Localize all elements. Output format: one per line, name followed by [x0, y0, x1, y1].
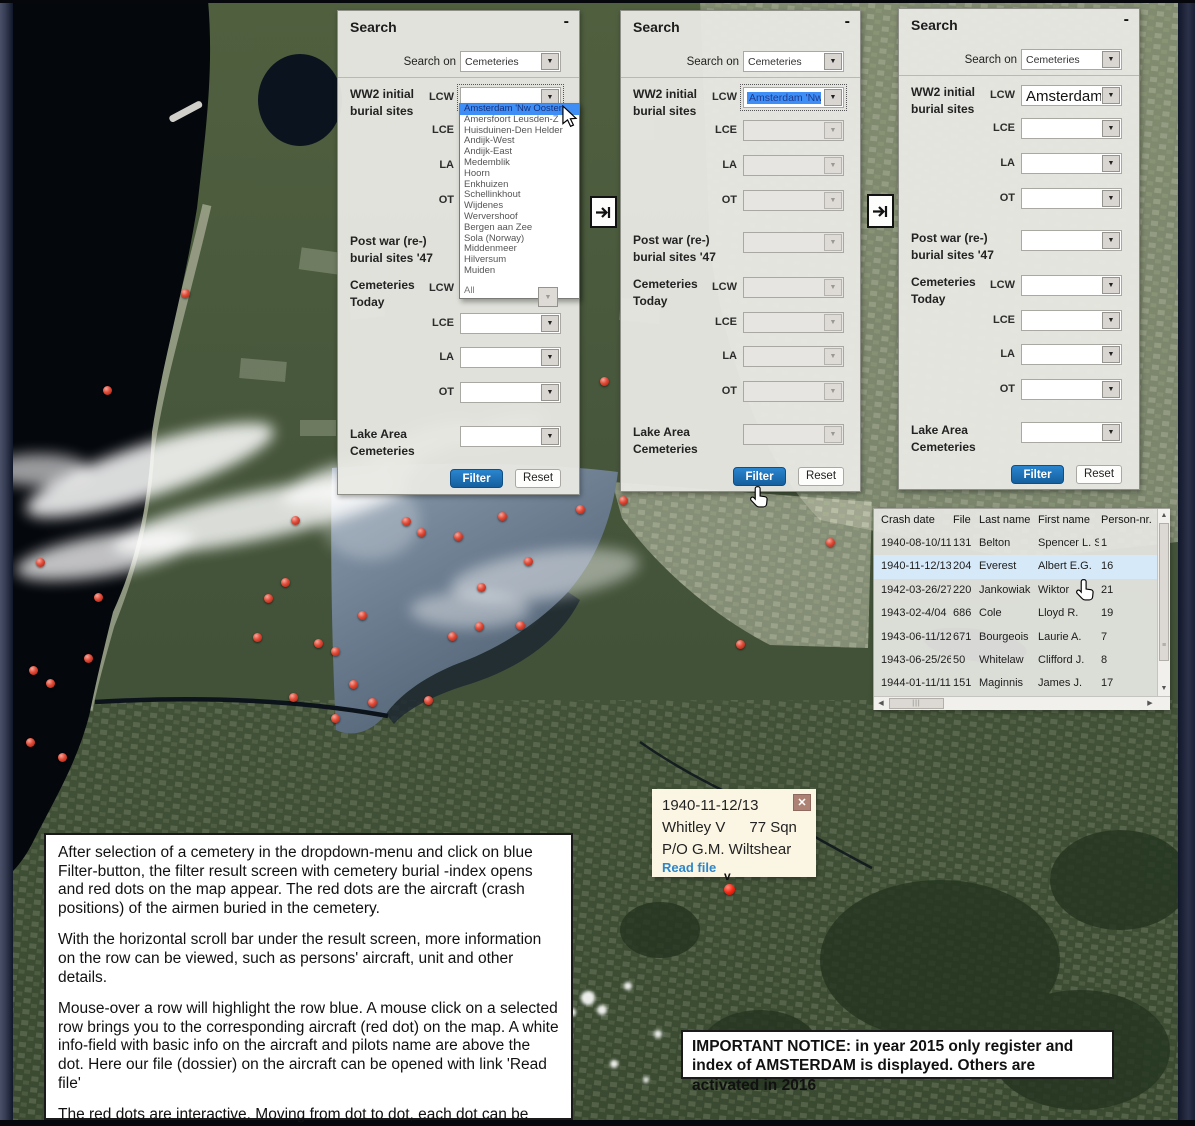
filter-button[interactable]: Filter [450, 469, 503, 488]
crash-site-dot[interactable] [424, 696, 433, 705]
lakearea-value [1022, 423, 1101, 442]
dropdown-item[interactable]: Amsterdam 'Nw Ooster [460, 104, 579, 115]
today-ot-value [744, 382, 823, 401]
window-edge-top [0, 0, 1195, 3]
table-cell: Lloyd R. [1038, 607, 1099, 619]
lakearea-label-2: Cemeteries [350, 444, 415, 458]
instructions-box: After selection of a cemetery in the dro… [44, 833, 573, 1120]
dropdown-arrow-icon: ▼ [824, 157, 842, 174]
table-cell: 220 [953, 584, 977, 596]
dropdown-arrow-icon[interactable]: ▼ [1102, 232, 1120, 249]
crash-site-dot[interactable] [477, 583, 486, 592]
lcw-label: LCW [683, 281, 737, 293]
crash-site-dot[interactable] [736, 640, 745, 649]
dropdown-arrow-icon: ▼ [824, 234, 842, 251]
dropdown-arrow-icon[interactable]: ▼ [824, 53, 842, 70]
crash-site-dot[interactable] [291, 516, 300, 525]
ot-value [1022, 189, 1101, 208]
today-lcw-select: ▼ [743, 277, 844, 298]
lakearea-label-1: Lake Area [350, 427, 407, 441]
crash-site-dot[interactable] [84, 654, 93, 663]
lcw-label: LCW [683, 91, 737, 103]
scroll-grip-icon: ≡ [1161, 642, 1167, 649]
crash-site-dot[interactable] [314, 639, 323, 648]
lce-label: LCE [961, 122, 1015, 134]
ot-value [744, 191, 823, 210]
dropdown-arrow-icon: ▼ [824, 279, 842, 296]
crash-site-dot[interactable] [331, 647, 340, 656]
table-cell: 16 [1101, 560, 1161, 572]
search-on-select[interactable]: Cemeteries ▼ [1021, 49, 1122, 70]
crash-site-dot[interactable] [58, 753, 67, 762]
ww2-ot-select[interactable]: ▼ [1021, 188, 1122, 209]
lce-label: LCE [400, 124, 454, 136]
postwar-label-2: burial sites '47 [350, 251, 433, 265]
today-ot-select[interactable]: ▼ [1021, 379, 1122, 400]
dropdown-item[interactable]: Bergen aan Zee [460, 223, 579, 234]
today-lcw-value [1022, 276, 1101, 295]
ot-label: OT [683, 194, 737, 206]
aircraft-line: Whitley V77 Sqn [662, 819, 797, 836]
table-row[interactable]: 1943-02-4/04686ColeLloyd R.19 [874, 602, 1169, 625]
column-header: First name [1038, 514, 1090, 526]
lcw-value: Amsterdam [1022, 86, 1101, 105]
table-cell: 17 [1101, 677, 1161, 689]
table-cell: 1943-06-11/12 [881, 631, 951, 643]
dropdown-arrow-icon[interactable]: ▼ [1102, 346, 1120, 363]
expand-panel-arrow-button[interactable] [867, 194, 894, 228]
ww2-la-select: ▼ [743, 155, 844, 176]
crash-site-dot[interactable] [264, 594, 273, 603]
today-la-value [1022, 345, 1101, 364]
today-la-select: ▼ [743, 346, 844, 367]
dropdown-item[interactable]: Hilversum [460, 255, 579, 266]
table-row[interactable]: 1942-03-26/27220JankowiakWiktor21 [874, 579, 1169, 602]
la-value [744, 156, 823, 175]
cemetery-dropdown-list: Amsterdam 'Nw OosterAmersfoort Leusden-Z… [459, 103, 580, 299]
crash-site-dot[interactable] [281, 578, 290, 587]
la-label: LA [400, 351, 454, 363]
la-label: LA [683, 159, 737, 171]
today-lcw-select[interactable]: ▼ [1021, 275, 1122, 296]
scroll-right-icon[interactable]: ▶ [1144, 698, 1156, 710]
table-cell: Everest [979, 560, 1036, 572]
postwar-value [1022, 231, 1101, 250]
la-label: LA [400, 159, 454, 171]
dropdown-arrow-icon[interactable]: ▼ [1102, 51, 1120, 68]
window-edge-right [1178, 0, 1195, 1126]
dropdown-item[interactable]: Medemblik [460, 158, 579, 169]
dropdown-item-all[interactable]: All [464, 285, 475, 296]
today-ot-value [461, 383, 540, 402]
dropdown-arrow-icon[interactable]: ▼ [1102, 120, 1120, 137]
crash-site-dot[interactable] [368, 698, 377, 707]
divider [899, 75, 1139, 76]
ot-label: OT [400, 386, 454, 398]
today-label-2: Today [350, 295, 384, 309]
filter-button[interactable]: Filter [733, 467, 786, 486]
crash-site-dot[interactable] [26, 738, 35, 747]
dropdown-arrow-icon[interactable]: ▼ [541, 384, 559, 401]
dropdown-item[interactable]: Hoorn [460, 169, 579, 180]
table-cell: 7 [1101, 631, 1161, 643]
lce-label: LCE [683, 124, 737, 136]
crash-site-dot[interactable] [475, 622, 484, 631]
minimize-icon[interactable]: - [1124, 11, 1129, 29]
postwar-label-2: burial sites '47 [911, 248, 994, 262]
table-cell: 50 [953, 654, 977, 666]
crash-site-dot[interactable] [524, 557, 533, 566]
arrow-to-bar-icon [872, 205, 889, 218]
search-on-label: Search on [929, 54, 1017, 66]
dropdown-arrow-icon: ▼ [824, 122, 842, 139]
today-lce-select: ▼ [743, 312, 844, 333]
la-label: LA [961, 157, 1015, 169]
ww2-lcw-select[interactable]: Amsterdam 'Nw O ▼ [743, 87, 844, 108]
ww2-lce-select: ▼ [743, 120, 844, 141]
table-row[interactable]: 1943-06-25/2650WhitelawClifford J.8 [874, 649, 1169, 672]
today-label-2: Today [911, 292, 945, 306]
close-icon[interactable]: ✕ [793, 794, 811, 811]
table-cell: 151 [953, 677, 977, 689]
filter-button[interactable]: Filter [1011, 465, 1064, 484]
postwar-label-1: Post war (re-) [350, 234, 427, 248]
crash-site-dot[interactable] [498, 512, 507, 521]
table-cell: 1943-02-4/04 [881, 607, 951, 619]
panel-title: Search [350, 19, 397, 35]
crash-site-dot[interactable] [331, 714, 340, 723]
lakearea-label-1: Lake Area [911, 423, 968, 437]
crash-site-dot[interactable] [516, 621, 525, 630]
horizontal-scrollbar[interactable]: ◀ ||| ▶ [874, 696, 1170, 710]
today-label-2: Today [633, 294, 667, 308]
crash-site-dot[interactable] [417, 528, 426, 537]
la-value [1022, 154, 1101, 173]
search-panel-2: Search - Search on Cemeteries ▼ WW2 init… [620, 10, 861, 492]
map-application-window: Search - Search on Cemeteries ▼ WW2 init… [0, 0, 1195, 1126]
dropdown-arrow-icon[interactable]: ▼ [1102, 277, 1120, 294]
lcw-label: LCW [400, 282, 454, 294]
crash-site-dot[interactable] [253, 633, 262, 642]
ot-label: OT [400, 194, 454, 206]
today-lce-value [461, 314, 540, 333]
ww2-la-select[interactable]: ▼ [1021, 153, 1122, 174]
search-on-select[interactable]: Cemeteries ▼ [743, 51, 844, 72]
lcw-value-selected: Amsterdam 'Nw O [747, 92, 821, 104]
table-cell: Spencer L. S. [1038, 537, 1099, 549]
crash-site-dot[interactable] [29, 666, 38, 675]
column-header: Crash date [881, 514, 935, 526]
expand-panel-arrow-button[interactable] [590, 196, 617, 228]
lce-label: LCE [400, 317, 454, 329]
popup-pointer-marker: v [724, 869, 731, 883]
today-lce-select[interactable]: ▼ [460, 313, 561, 334]
lakearea-select: ▼ [743, 424, 844, 445]
table-row[interactable]: 1943-06-11/12671BourgeoisLaurie A.7 [874, 626, 1169, 649]
dropdown-items: Amsterdam 'Nw OosterAmersfoort Leusden-Z… [460, 104, 579, 277]
search-on-value: Cemeteries [461, 52, 540, 71]
lakearea-label-2: Cemeteries [633, 442, 698, 456]
table-cell: Albert E.G. [1038, 560, 1099, 572]
table-cell: Belton [979, 537, 1036, 549]
table-cell: Cole [979, 607, 1036, 619]
vertical-scrollbar[interactable]: ▲ ≡ ▼ [1157, 509, 1170, 696]
dropdown-item[interactable]: Muiden [460, 266, 579, 277]
dropdown-item[interactable]: Schellinkhout [460, 190, 579, 201]
crash-site-dot[interactable] [576, 505, 585, 514]
postwar-select[interactable]: ▼ [1021, 230, 1122, 251]
dropdown-arrow-icon[interactable]: ▼ [1102, 190, 1120, 207]
minimize-icon[interactable]: - [564, 13, 569, 31]
crash-site-dot[interactable] [103, 386, 112, 395]
dropdown-arrow-icon[interactable]: ▼ [541, 428, 559, 445]
table-cell: 1943-06-25/26 [881, 654, 951, 666]
dropdown-arrow-icon[interactable]: ▼ [541, 53, 559, 70]
today-lce-select[interactable]: ▼ [1021, 310, 1122, 331]
search-on-select[interactable]: Cemeteries ▼ [460, 51, 561, 72]
table-cell: Clifford J. [1038, 654, 1099, 666]
table-cell: 1 [1101, 537, 1161, 549]
dropdown-arrow-icon: ▼ [824, 192, 842, 209]
horizontal-scroll-thumb[interactable]: ||| [889, 698, 944, 709]
crash-site-dot[interactable] [454, 532, 463, 541]
lakearea-label-2: Cemeteries [911, 440, 976, 454]
dropdown-arrow-icon: ▼ [824, 348, 842, 365]
selected-crash-site-dot[interactable] [724, 884, 735, 895]
lce-label: LCE [961, 314, 1015, 326]
dropdown-arrow-icon[interactable]: ▼ [1102, 155, 1120, 172]
dropdown-arrow-icon[interactable]: ▼ [541, 349, 559, 366]
table-row[interactable]: 1940-08-10/11131BeltonSpencer L. S.1 [874, 532, 1169, 555]
window-edge-left [0, 0, 13, 1126]
postwar-label-1: Post war (re-) [633, 233, 710, 247]
squadron: 77 Sqn [749, 819, 797, 836]
ww2-lcw-select[interactable]: Amsterdam ▼ [1021, 85, 1122, 106]
crash-site-dot[interactable] [402, 517, 411, 526]
pilot-name: P/O G.M. Wiltshear [662, 841, 791, 858]
lce-value [744, 121, 823, 140]
table-cell: 686 [953, 607, 977, 619]
crash-date: 1940-11-12/13 [662, 797, 758, 814]
search-on-label: Search on [651, 56, 739, 68]
table-cell: 1940-08-10/11 [881, 537, 951, 549]
table-cell: 1942-03-26/27 [881, 584, 951, 596]
table-body: 1940-08-10/11131BeltonSpencer L. S.11940… [874, 532, 1169, 696]
dropdown-item[interactable]: Wijdenes [460, 201, 579, 212]
crash-site-dot[interactable] [181, 289, 190, 298]
dropdown-item[interactable]: Andijk-West [460, 136, 579, 147]
table-cell: 1940-11-12/13 [881, 560, 951, 572]
lcw-label: LCW [961, 279, 1015, 291]
today-lcw-value [744, 278, 823, 297]
table-cell: Whitelaw [979, 654, 1036, 666]
la-label: LA [961, 348, 1015, 360]
today-la-select[interactable]: ▼ [460, 347, 561, 368]
crash-site-dot[interactable] [826, 538, 835, 547]
dropdown-arrow-icon: ▼ [824, 314, 842, 331]
lakearea-value [744, 425, 823, 444]
instructions-paragraph: Mouse-over a row will highlight the row … [58, 1000, 559, 1093]
instructions-paragraph: After selection of a cemetery in the dro… [58, 844, 559, 918]
panel-title: Search [911, 17, 958, 33]
scroll-up-icon[interactable]: ▲ [1158, 510, 1170, 522]
dropdown-item[interactable]: Middenmeer [460, 244, 579, 255]
lakearea-label-1: Lake Area [633, 425, 690, 439]
table-cell: Laurie A. [1038, 631, 1099, 643]
arrow-to-bar-icon [595, 206, 612, 219]
search-panel-3: Search - Search on Cemeteries ▼ WW2 init… [898, 8, 1140, 490]
crash-site-dot[interactable] [358, 611, 367, 620]
column-header: File [953, 514, 971, 526]
vertical-scroll-thumb[interactable]: ≡ [1159, 523, 1169, 661]
crash-site-dot[interactable] [36, 558, 45, 567]
today-ot-select[interactable]: ▼ [460, 382, 561, 403]
search-on-label: Search on [368, 56, 456, 68]
crash-site-dot[interactable] [349, 680, 358, 689]
table-cell: Maginnis [979, 677, 1036, 689]
postwar-select: ▼ [743, 232, 844, 253]
table-row[interactable]: 1944-01-11/11151MaginnisJames J.17 [874, 672, 1169, 695]
minimize-icon[interactable]: - [845, 13, 850, 31]
lakearea-select[interactable]: ▼ [1021, 422, 1122, 443]
dropdown-item[interactable]: Sola (Norway) [460, 234, 579, 245]
divider [621, 77, 860, 78]
today-ot-select: ▼ [743, 381, 844, 402]
postwar-value [744, 233, 823, 252]
covered-select-arrow-icon[interactable]: ▼ [538, 287, 558, 307]
instructions-paragraph: With the horizontal scroll bar under the… [58, 931, 559, 987]
today-la-select[interactable]: ▼ [1021, 344, 1122, 365]
reset-button[interactable]: Reset [1076, 465, 1122, 484]
aircraft-info-popup: 1940-11-12/13 Whitley V77 Sqn P/O G.M. W… [652, 789, 816, 877]
ww2-lce-select[interactable]: ▼ [1021, 118, 1122, 139]
ww2-label-2: burial sites [633, 104, 696, 118]
lce-label: LCE [683, 316, 737, 328]
crash-site-dot[interactable] [448, 632, 457, 641]
lakearea-select[interactable]: ▼ [460, 426, 561, 447]
column-header: Last name [979, 514, 1030, 526]
dropdown-arrow-icon[interactable]: ▼ [1102, 312, 1120, 329]
read-file-link[interactable]: Read file [662, 860, 716, 875]
dropdown-arrow-icon[interactable]: ▼ [1102, 424, 1120, 441]
dropdown-arrow-icon: ▼ [824, 426, 842, 443]
ww2-label-2: burial sites [911, 102, 974, 116]
table-header: Crash dateFileLast nameFirst namePerson-… [874, 509, 1169, 532]
la-label: LA [683, 350, 737, 362]
dropdown-item[interactable]: Wervershoof [460, 212, 579, 223]
crash-site-dot[interactable] [600, 377, 609, 386]
scroll-left-icon[interactable]: ◀ [875, 698, 887, 710]
ww2-ot-select: ▼ [743, 190, 844, 211]
today-lce-value [1022, 311, 1101, 330]
postwar-label-2: burial sites '47 [633, 250, 716, 264]
crash-site-dot[interactable] [46, 679, 55, 688]
dropdown-arrow-icon[interactable]: ▼ [1102, 87, 1120, 104]
table-cell: 19 [1101, 607, 1161, 619]
dropdown-arrow-icon[interactable]: ▼ [1102, 381, 1120, 398]
today-la-value [744, 347, 823, 366]
ot-label: OT [961, 383, 1015, 395]
table-cell: 131 [953, 537, 977, 549]
panel-title: Search [633, 19, 680, 35]
today-la-value [461, 348, 540, 367]
crash-site-dot[interactable] [94, 593, 103, 602]
reset-button[interactable]: Reset [798, 467, 844, 486]
table-cell: 1944-01-11/11 [881, 677, 951, 689]
lakearea-value [461, 427, 540, 446]
ot-label: OT [683, 385, 737, 397]
dropdown-item[interactable]: Andijk-East [460, 147, 579, 158]
lcw-label: LCW [961, 89, 1015, 101]
crash-site-dot[interactable] [289, 693, 298, 702]
ww2-label-2: burial sites [350, 104, 413, 118]
table-cell: Wiktor [1038, 584, 1099, 596]
today-ot-value [1022, 380, 1101, 399]
search-on-value: Cemeteries [744, 52, 823, 71]
postwar-label-1: Post war (re-) [911, 231, 988, 245]
table-row[interactable]: 1940-11-12/13204EverestAlbert E.G.16 [874, 555, 1169, 578]
divider [338, 77, 579, 78]
lce-value [1022, 119, 1101, 138]
reset-button[interactable]: Reset [515, 469, 561, 488]
table-cell: Jankowiak [979, 584, 1036, 596]
table-cell: 21 [1101, 584, 1161, 596]
table-cell: Bourgeois [979, 631, 1036, 643]
table-cell: James J. [1038, 677, 1099, 689]
aircraft-type: Whitley V [662, 819, 725, 836]
burial-index-table: Crash dateFileLast nameFirst namePerson-… [873, 508, 1170, 710]
table-cell: 8 [1101, 654, 1161, 666]
dropdown-arrow-icon[interactable]: ▼ [824, 89, 842, 106]
search-on-value: Cemeteries [1022, 50, 1101, 69]
dropdown-arrow-icon: ▼ [824, 383, 842, 400]
today-lce-value [744, 313, 823, 332]
instructions-paragraph: The red dots are interactive. Moving fro… [58, 1106, 559, 1126]
crash-site-dot[interactable] [619, 496, 628, 505]
column-header: Person-nr. [1101, 514, 1152, 526]
table-cell: 671 [953, 631, 977, 643]
scroll-down-icon[interactable]: ▼ [1158, 683, 1170, 695]
dropdown-item[interactable]: Amersfoort Leusden-Z [460, 115, 579, 126]
lcw-label: LCW [400, 91, 454, 103]
dropdown-item[interactable]: Huisduinen-Den Helder [460, 126, 579, 137]
important-notice-box: IMPORTANT NOTICE: in year 2015 only regi… [681, 1030, 1114, 1079]
table-cell: 204 [953, 560, 977, 572]
dropdown-arrow-icon[interactable]: ▼ [541, 315, 559, 332]
dropdown-item[interactable]: Enkhuizen [460, 180, 579, 191]
ot-label: OT [961, 192, 1015, 204]
